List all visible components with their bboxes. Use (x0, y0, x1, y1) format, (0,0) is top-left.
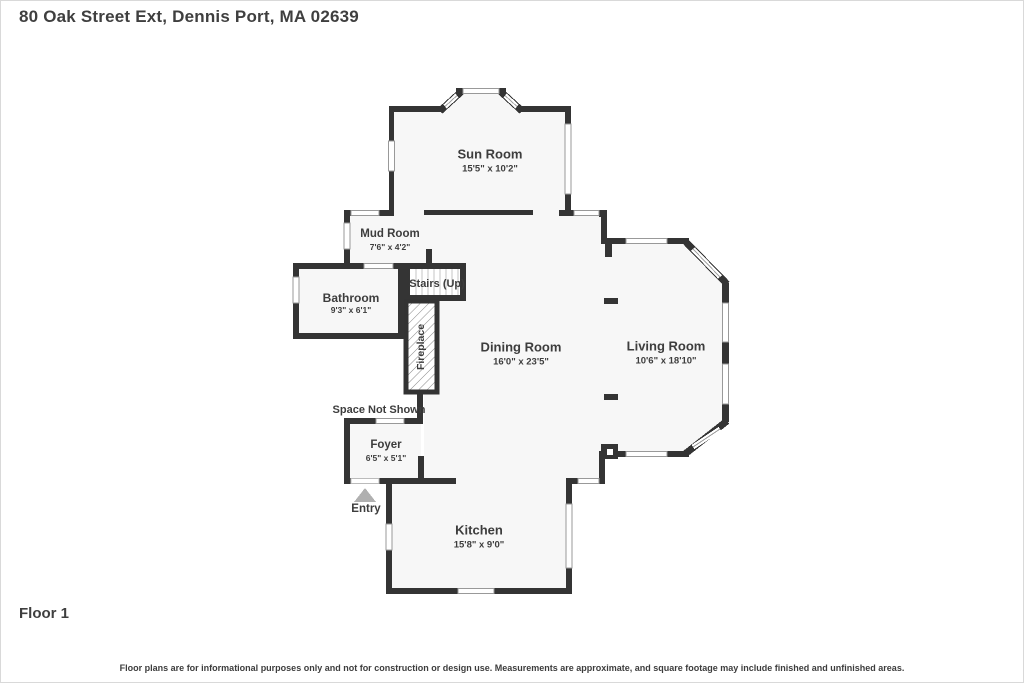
floor-number-label: Floor 1 (19, 605, 69, 622)
foyer-top-window (376, 419, 404, 424)
fireplace-label: Fireplace (415, 324, 427, 370)
mud-room-top-window (351, 211, 379, 216)
foyer-floor (347, 421, 421, 481)
floor-areas (296, 92, 726, 591)
bathroom-floor (296, 266, 401, 336)
kitchen-floor (389, 479, 569, 591)
floor-plan-page: 80 Oak Street Ext, Dennis Port, MA 02639 (0, 0, 1024, 683)
disclaimer-text: Floor plans are for informational purpos… (1, 663, 1023, 673)
kitchen-topright-window (578, 479, 599, 484)
dining-room-floor (424, 213, 604, 484)
stairs-treads (410, 269, 460, 295)
dining-top-window (574, 211, 599, 216)
bathroom-top-window (364, 264, 393, 269)
living-bay-window-lower (723, 364, 729, 404)
living-top-window (626, 239, 667, 244)
kitchen-left-window (386, 524, 392, 550)
mud-room-floor (347, 213, 424, 267)
kitchen-bottom-window (458, 589, 494, 594)
bathroom-left-window (293, 277, 299, 303)
kitchen-right-window (566, 504, 572, 568)
corner-post-notch (607, 449, 613, 455)
entry-opening (351, 479, 379, 484)
living-room-floor (604, 241, 726, 457)
floor-plan-drawing (1, 1, 1024, 683)
entry-arrow-icon (354, 488, 376, 502)
sun-room-left-window (389, 141, 395, 171)
living-bay-window-upper (723, 303, 729, 342)
mud-room-left-window (344, 223, 350, 249)
sun-room-right-window (565, 124, 571, 194)
living-bottom-window (626, 452, 667, 457)
